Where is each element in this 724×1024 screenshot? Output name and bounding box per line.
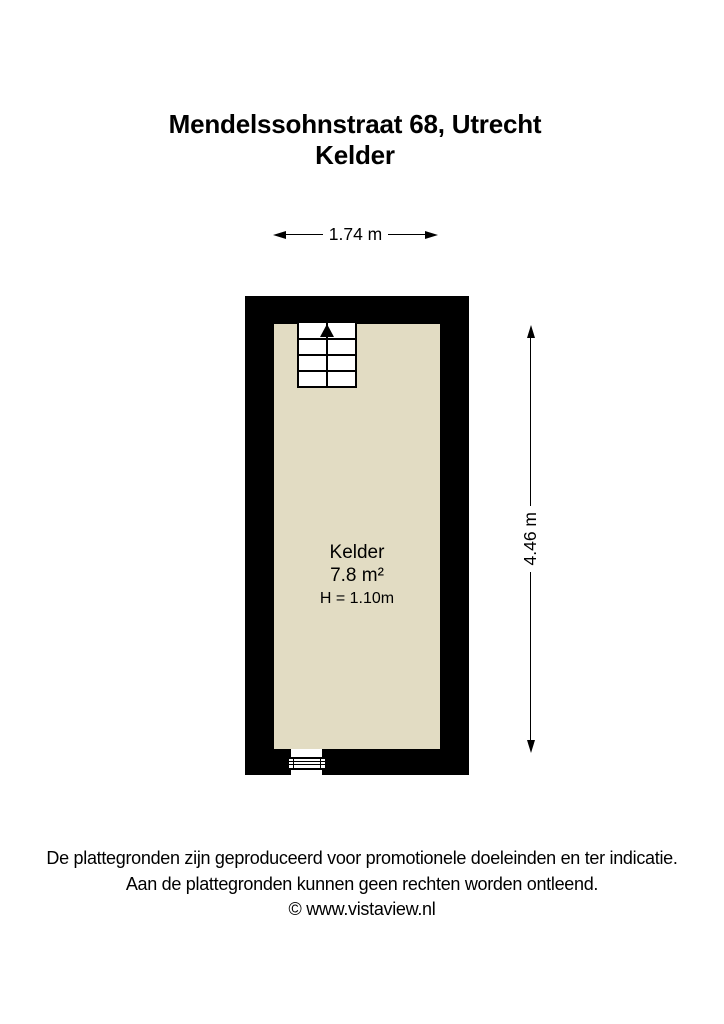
disclaimer-line-2: Aan de plattegronden kunnen geen rechten… — [0, 872, 724, 898]
dimension-line — [530, 338, 532, 506]
room-label-block: Kelder 7.8 m² H = 1.10m — [245, 541, 469, 610]
stair-tread-line — [299, 370, 355, 372]
arrow-up-icon — [527, 325, 535, 338]
height-dimension-label: 4.46 m — [520, 506, 541, 572]
footer: De plattegronden zijn geproduceerd voor … — [0, 846, 724, 923]
title-floor-name: Kelder — [0, 140, 710, 171]
dimension-line — [530, 572, 532, 740]
stair-tread-line — [299, 354, 355, 356]
room-ceiling-height-label: H = 1.10m — [245, 588, 469, 610]
stair-tread-line — [299, 338, 355, 340]
basement-window — [287, 757, 327, 770]
disclaimer-line-1: De plattegronden zijn geproduceerd voor … — [0, 846, 724, 872]
staircase — [297, 323, 357, 388]
arrow-down-icon — [527, 740, 535, 753]
arrow-left-icon — [273, 231, 286, 239]
page-title: Mendelssohnstraat 68, Utrecht Kelder — [0, 109, 710, 171]
dimension-line — [286, 234, 323, 236]
arrow-right-icon — [425, 231, 438, 239]
stairs-up-arrow-icon — [320, 324, 334, 337]
dimension-line — [388, 234, 425, 236]
floor-plan — [245, 296, 469, 775]
floorplan-page: Mendelssohnstraat 68, Utrecht Kelder 1.7… — [0, 0, 724, 1024]
copyright-line: © www.vistaview.nl — [0, 897, 724, 923]
width-dimension: 1.74 m — [273, 225, 438, 244]
title-address: Mendelssohnstraat 68, Utrecht — [0, 109, 710, 140]
width-dimension-label: 1.74 m — [323, 224, 389, 245]
height-dimension: 4.46 m — [521, 325, 540, 753]
room-name-label: Kelder — [245, 541, 469, 564]
room-area-label: 7.8 m² — [245, 564, 469, 587]
